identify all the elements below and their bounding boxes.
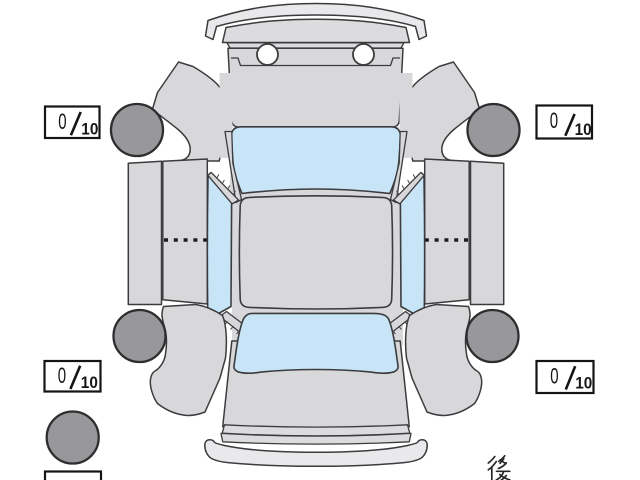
svg-text:10: 10 bbox=[81, 121, 98, 139]
svg-text:10: 10 bbox=[575, 121, 592, 139]
svg-text:0: 0 bbox=[58, 363, 66, 388]
svg-text:10: 10 bbox=[575, 375, 592, 393]
svg-text:0: 0 bbox=[550, 108, 558, 133]
svg-text:0: 0 bbox=[58, 109, 66, 134]
svg-text:0: 0 bbox=[550, 363, 558, 388]
svg-text:10: 10 bbox=[81, 375, 98, 393]
